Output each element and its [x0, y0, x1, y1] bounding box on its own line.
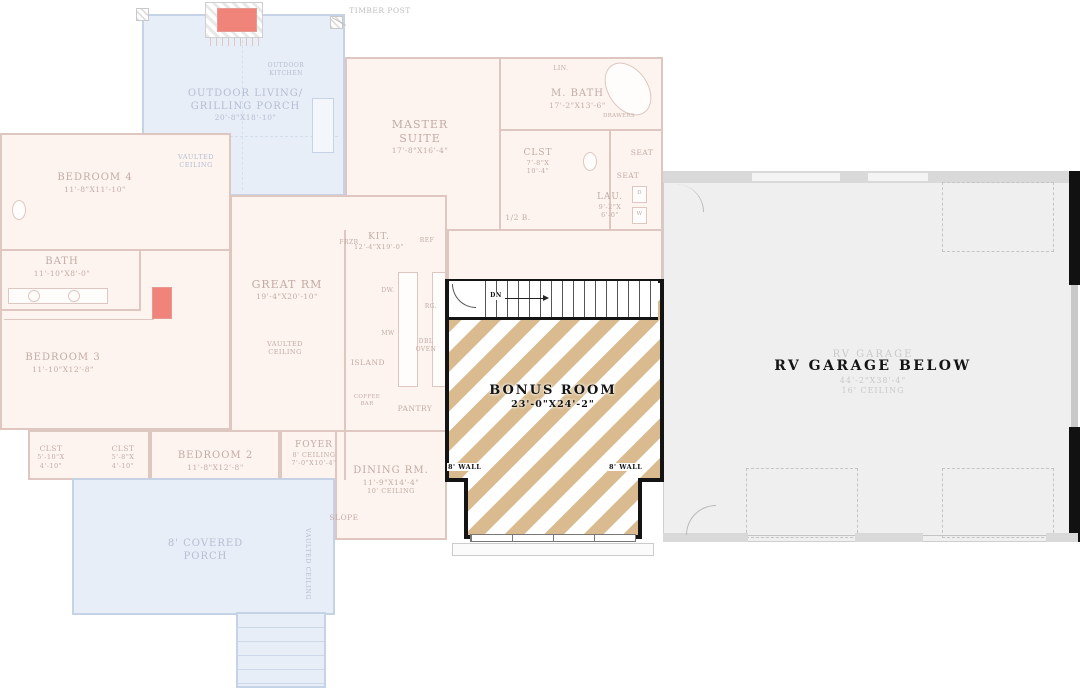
room-dims: 19'-4"X20'-10": [222, 292, 352, 301]
outdoor-fireplace-firebox: [217, 8, 257, 32]
room-dims: 4'-10": [102, 462, 144, 470]
room-dims: 20'-8"X18'-10": [153, 113, 338, 122]
label-range: RG.: [418, 303, 444, 311]
garage-top-window: [752, 173, 840, 181]
appliance: DBL: [408, 338, 444, 346]
stairs-down: [485, 281, 658, 320]
garage-top-window: [868, 173, 928, 181]
room-name: DINING RM.: [336, 465, 446, 478]
label-wall-left: 8' WALL: [447, 463, 482, 471]
label-lin: LIN.: [545, 65, 577, 73]
room-name: M. BATH: [520, 88, 635, 101]
room-name: LAU.: [588, 192, 632, 203]
label-dryer: D: [633, 190, 646, 197]
label-great-vaulted: VAULTED CEILING: [255, 340, 315, 356]
note: 8' CEILING: [282, 451, 346, 459]
dimension-arrow-line: [4, 319, 154, 320]
room-name: BEDROOM 3: [8, 352, 118, 365]
note: DRAWERS: [595, 113, 643, 120]
garage-dashed-overhead: [746, 468, 858, 538]
note: BAR: [346, 401, 388, 408]
note: CEILING: [168, 161, 224, 169]
bath-vanity: [8, 288, 108, 304]
dn-arrow-head: [543, 295, 549, 301]
room-name: BATH: [12, 256, 112, 269]
label-bedroom4: BEDROOM 4 11'-8"X11'-10": [35, 172, 155, 194]
room-name: CLST: [30, 444, 72, 453]
note: SEAT: [622, 148, 662, 157]
room-dims: 11'-10"X12'-8": [8, 365, 118, 374]
room-dims: 5'-8"X: [102, 453, 144, 461]
wall: [499, 57, 501, 231]
room-name: CLST: [102, 444, 144, 453]
label-laundry: LAU. 9'-2"X 6'-0": [588, 192, 632, 220]
sink: [68, 290, 80, 302]
note: COFFEE: [346, 394, 388, 401]
label-closet-a: CLST 5'-10"X 4'-10": [30, 444, 72, 470]
kitchen-counter: [432, 272, 446, 387]
label-master-closet: CLST 7'-8"X 10'-4": [512, 148, 564, 176]
label-covered-porch: 8' COVERED PORCH: [128, 538, 283, 563]
label-dining: DINING RM. 11'-9"X14'-4" 10' CEILING: [336, 465, 446, 495]
label-bedroom3: BEDROOM 3 11'-10"X12'-8": [8, 352, 118, 374]
room-name: OUTDOOR LIVING/: [153, 88, 338, 101]
room-name: KITCHEN: [258, 70, 314, 78]
room-name: GREAT RM: [222, 278, 352, 292]
garage-title: RV GARAGE BELOW: [753, 358, 993, 376]
toilet: [12, 200, 26, 220]
dn-arrow-line: [505, 298, 543, 299]
toilet: [583, 152, 597, 171]
label-mw: MW: [376, 330, 400, 338]
note: CEILING: [255, 348, 315, 356]
room-name: FOYER: [282, 440, 346, 451]
label-great-room: GREAT RM 19'-4"X20'-10": [222, 278, 352, 301]
label-seat: SEAT: [608, 171, 648, 180]
room-dims: 17'-8"X16'-4": [355, 146, 485, 155]
room-dims: 11'-10"X8'-0": [12, 269, 112, 278]
note: SLOPE: [318, 513, 370, 522]
wall: [139, 250, 141, 310]
note: 16' CEILING: [798, 386, 948, 396]
wall: [0, 249, 231, 251]
label-master-suite: MASTER SUITE 17'-8"X16'-4": [355, 118, 485, 155]
great-room-fireplace: [152, 287, 172, 319]
room-dims: 9'-2"X: [588, 203, 632, 211]
label-timber-post: TIMBER POST: [345, 6, 415, 15]
garage-bottom-wall: [1046, 533, 1078, 542]
label-rv-garage-below: RV GARAGE BELOW: [753, 358, 993, 376]
room-name: BEDROOM 2: [153, 450, 278, 463]
label-bonus-room: BONUS ROOM 23'-0"X24'-2": [463, 383, 643, 411]
label-outdoor-kitchen: OUTDOOR KITCHEN: [258, 62, 314, 77]
label-pantry: PANTRY: [385, 404, 445, 413]
label-bedroom2: BEDROOM 2 11'-8"X12'-8": [153, 450, 278, 472]
room-name: CLST: [512, 148, 564, 159]
appliance: W: [633, 211, 646, 218]
room-dims: 5'-10"X: [30, 453, 72, 461]
bonus-room-windows: [470, 534, 636, 542]
annotation-text: TIMBER POST: [345, 6, 415, 15]
room-name: OUTDOOR: [258, 62, 314, 70]
garage-bottom-wall: [855, 533, 923, 542]
room-dims: 11'-8"X11'-10": [35, 185, 155, 194]
appliance: RG.: [418, 303, 444, 311]
label-dn: DN: [488, 292, 504, 300]
room-name: 1/2 B.: [498, 213, 538, 222]
note: VAULTED CEILING: [304, 524, 312, 604]
window-sill: [452, 543, 654, 556]
room-name: BONUS ROOM: [463, 383, 643, 399]
room-dims: 10'-4": [512, 167, 564, 175]
label-ref: REF: [412, 237, 442, 245]
label-frzr: FRZR: [333, 239, 365, 247]
label-outdoor-living: OUTDOOR LIVING/ GRILLING PORCH 20'-8"X18…: [153, 88, 338, 122]
label-garage-ghost-dims: 44'-2"X38'-4" 16' CEILING: [798, 376, 948, 396]
appliance: D: [633, 190, 646, 197]
garage-right-window-strip: [1071, 285, 1078, 427]
appliance: OVEN: [408, 346, 444, 354]
label-coffee-bar: COFFEE BAR: [346, 394, 388, 408]
room-name: PANTRY: [385, 404, 445, 413]
room-name: 8' COVERED: [128, 538, 283, 551]
label-island: ISLAND: [342, 358, 394, 367]
label-wall-right: 8' WALL: [608, 463, 643, 471]
note: VAULTED: [255, 340, 315, 348]
garage-dashed-overhead: [942, 468, 1054, 538]
room-name: BEDROOM 4: [35, 172, 155, 185]
label-drawers: DRAWERS: [595, 113, 643, 120]
appliance: FRZR: [333, 239, 365, 247]
wall: [500, 129, 663, 131]
garage-dashed-overhead: [942, 182, 1054, 252]
room-dims: 11'-9"X14'-4": [336, 478, 446, 487]
room-dims: 17'-2"X13'-6": [520, 101, 635, 110]
room-name: LIN.: [545, 65, 577, 73]
label-slope: SLOPE: [318, 513, 370, 522]
label-seat: SEAT: [622, 148, 662, 157]
label-dw: DW.: [376, 287, 400, 295]
sink: [28, 290, 40, 302]
note: SEAT: [608, 171, 648, 180]
note: VAULTED: [168, 153, 224, 161]
label-m-bath: M. BATH 17'-2"X13'-6": [520, 88, 635, 110]
room-dims: 7'-8"X: [512, 159, 564, 167]
room-dims: 6'-0": [588, 211, 632, 219]
appliance: MW: [376, 330, 400, 338]
room-dims: 23'-0"X24'-2": [463, 399, 643, 411]
stairs-direction: DN: [488, 292, 504, 300]
hearth-detail: [210, 38, 260, 46]
label-dbl-oven: DBL OVEN: [408, 338, 444, 353]
room-dims: 11'-8"X12'-8": [153, 463, 278, 472]
label-porch-vaulted: VAULTED CEILING: [168, 153, 224, 169]
room-dims: 4'-10": [30, 462, 72, 470]
floor-plan-canvas: OUTDOOR LIVING/ GRILLING PORCH 20'-8"X18…: [0, 0, 1080, 690]
room-name: MASTER: [355, 118, 485, 132]
kitchen-island: [398, 272, 418, 387]
note: 10' CEILING: [336, 487, 446, 495]
wall: [0, 309, 141, 311]
room-name: GRILLING PORCH: [153, 101, 338, 114]
label-closet-b: CLST 5'-8"X 4'-10": [102, 444, 144, 470]
room-dims: 44'-2"X38'-4": [798, 376, 948, 386]
porch-post: [136, 8, 149, 21]
room-name: SUITE: [355, 132, 485, 146]
garage-right-wall-upper: [1069, 171, 1080, 285]
label-bath: BATH 11'-10"X8'-0": [12, 256, 112, 278]
hall-block: [447, 229, 663, 281]
appliance: REF: [412, 237, 442, 245]
appliance: DW.: [376, 287, 400, 295]
note: ISLAND: [342, 358, 394, 367]
garage-right-wall-lower: [1069, 427, 1080, 542]
label-side-vaulted: VAULTED CEILING: [304, 524, 312, 604]
entry-steps: [236, 612, 326, 688]
label-washer: W: [633, 211, 646, 218]
room-name: PORCH: [128, 551, 283, 564]
label-half-bath: 1/2 B.: [498, 213, 538, 222]
label-foyer: FOYER 8' CEILING 7'-0"X10'-4": [282, 440, 346, 468]
